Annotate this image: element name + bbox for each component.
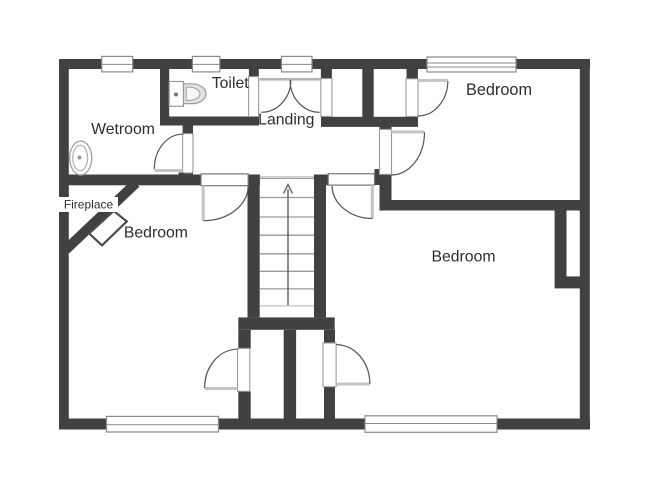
svg-text:Wetroom: Wetroom [91,121,155,138]
svg-text:Bedroom: Bedroom [431,249,495,266]
svg-text:Bedroom: Bedroom [466,81,532,99]
svg-text:Toilet: Toilet [212,75,249,92]
svg-text:Bedroom: Bedroom [124,224,188,241]
svg-text:Fireplace: Fireplace [64,197,114,211]
svg-text:Landing: Landing [258,111,314,128]
